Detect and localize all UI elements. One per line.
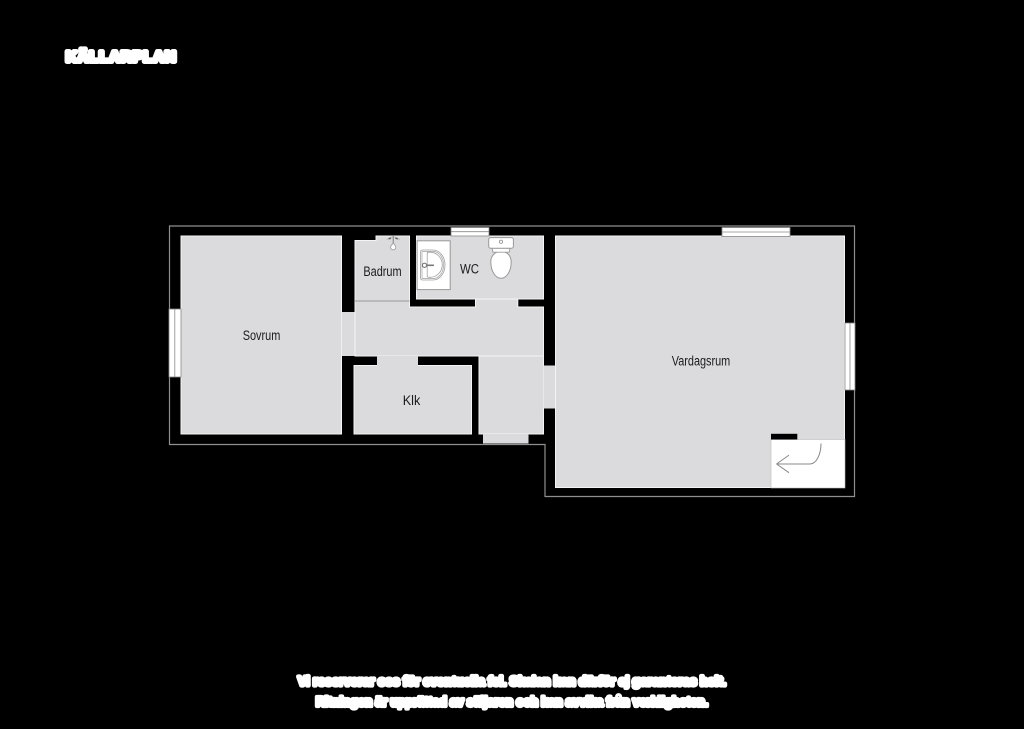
svg-text:Ritningen är upprättad av sälj: Ritningen är upprättad av säljaren och k… xyxy=(316,695,708,709)
svg-text:Vardagsrum: Vardagsrum xyxy=(672,354,731,369)
svg-text:Badrum: Badrum xyxy=(363,264,401,279)
svg-text:KÄLLARPLAN: KÄLLARPLAN xyxy=(66,49,177,66)
svg-text:Klk: Klk xyxy=(403,393,421,408)
svg-text:Vi reserverar oss för eventuel: Vi reserverar oss för eventuella fel. Sk… xyxy=(298,675,726,689)
svg-text:Sovrum: Sovrum xyxy=(243,328,281,343)
svg-text:WC: WC xyxy=(460,262,479,277)
